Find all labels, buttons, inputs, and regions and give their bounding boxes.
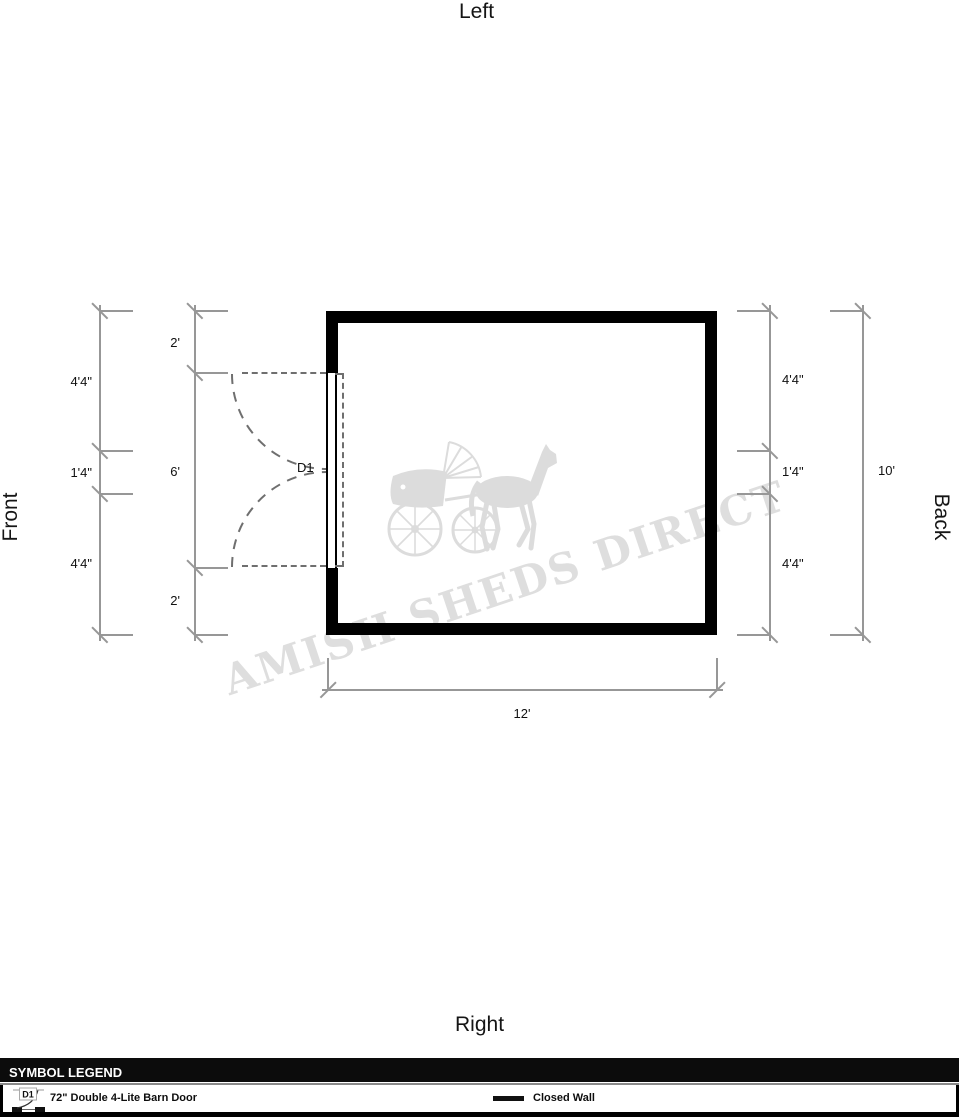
legend-footer-bar bbox=[0, 1112, 959, 1117]
dim-label: 10' bbox=[878, 463, 895, 478]
dim-extension bbox=[100, 310, 133, 312]
door-tag: D1 bbox=[297, 460, 314, 475]
closed-wall-line bbox=[493, 1096, 524, 1101]
dim-extension bbox=[737, 634, 770, 636]
dim-label: 4'4" bbox=[52, 374, 92, 389]
dim-extension bbox=[737, 493, 770, 495]
dim-extension bbox=[100, 634, 133, 636]
dim-extension bbox=[716, 658, 718, 690]
dim-label: 1'4" bbox=[52, 465, 92, 480]
floor-plan-page: Left Right Front Back AMISH SHEDS DIRECT bbox=[0, 0, 959, 1117]
legend-door-code: D1 bbox=[22, 1090, 34, 1100]
dim-label: 1'4" bbox=[782, 464, 804, 479]
legend-header: SYMBOL LEGEND bbox=[0, 1058, 959, 1082]
dim-extension bbox=[100, 493, 133, 495]
orientation-label-top: Left bbox=[459, 0, 494, 24]
dim-extension bbox=[830, 310, 863, 312]
dim-extension bbox=[737, 450, 770, 452]
door-swing-arcs bbox=[230, 373, 330, 569]
dimension-line bbox=[194, 305, 196, 641]
dim-extension bbox=[195, 634, 228, 636]
dim-extension bbox=[195, 372, 228, 374]
symbol-legend: SYMBOL LEGEND D1 72" Double 4-Lite Barn … bbox=[0, 1055, 959, 1117]
orientation-label-left: Front bbox=[0, 492, 23, 541]
dim-label: 2' bbox=[150, 335, 180, 350]
dim-extension bbox=[195, 567, 228, 569]
shed-wall-outline bbox=[326, 311, 717, 635]
dim-label: 4'4" bbox=[782, 556, 804, 571]
orientation-label-bottom: Right bbox=[455, 1013, 504, 1037]
dimension-line bbox=[322, 689, 723, 691]
dim-extension bbox=[830, 634, 863, 636]
dimension-line bbox=[769, 305, 771, 641]
dim-extension bbox=[100, 450, 133, 452]
legend-item-label: 72" Double 4-Lite Barn Door bbox=[50, 1092, 197, 1104]
dimension-line bbox=[99, 305, 101, 641]
legend-title: SYMBOL LEGEND bbox=[9, 1065, 122, 1080]
dim-label: 4'4" bbox=[52, 556, 92, 571]
dim-label: 12' bbox=[492, 706, 552, 721]
dim-label: 6' bbox=[150, 464, 180, 479]
door-swing-icon: D1 bbox=[12, 1087, 45, 1112]
dimension-line bbox=[862, 305, 864, 641]
legend-item-label: Closed Wall bbox=[533, 1092, 595, 1104]
dim-extension bbox=[327, 658, 329, 690]
door-dashed-track bbox=[335, 373, 344, 567]
dim-extension bbox=[737, 310, 770, 312]
orientation-label-right: Back bbox=[929, 494, 953, 541]
dim-label: 4'4" bbox=[782, 372, 804, 387]
dim-label: 2' bbox=[150, 593, 180, 608]
dim-extension bbox=[195, 310, 228, 312]
